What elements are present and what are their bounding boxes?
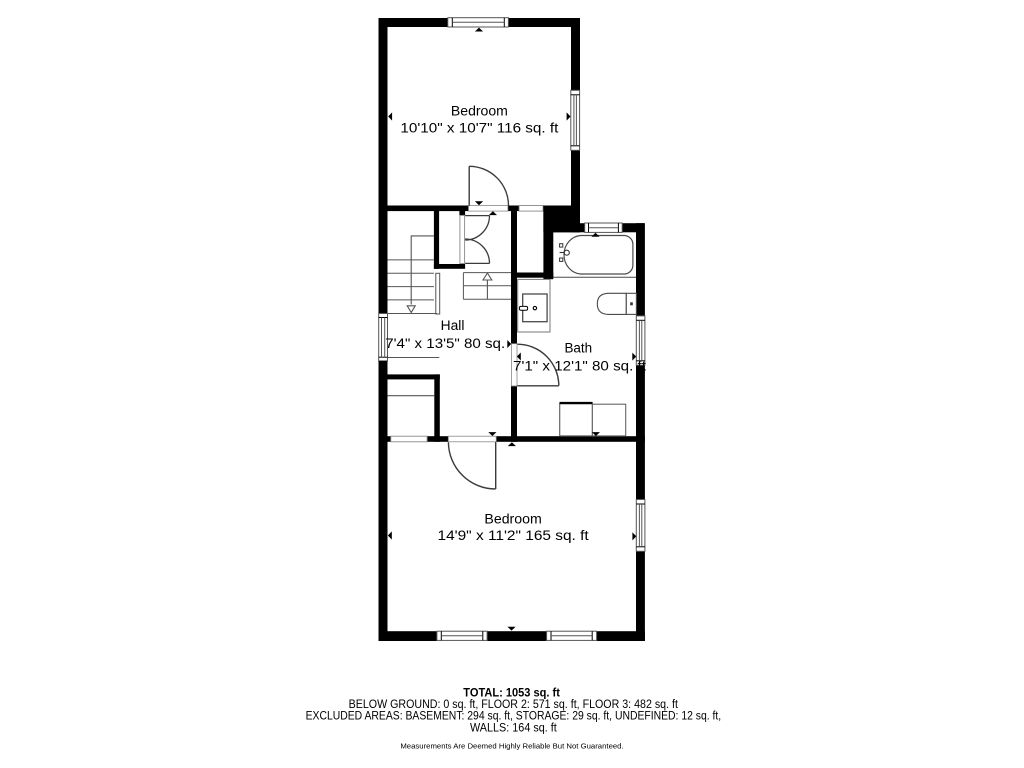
svg-text:Bath: Bath <box>564 341 592 357</box>
svg-text:Hall: Hall <box>441 318 465 334</box>
svg-text:WALLS: 164 sq. ft: WALLS: 164 sq. ft <box>470 720 557 734</box>
svg-text:Bedroom: Bedroom <box>484 511 541 527</box>
svg-text:7'4" x 13'5" 80 sq.: 7'4" x 13'5" 80 sq. <box>385 336 505 352</box>
svg-text:Bedroom: Bedroom <box>451 104 508 120</box>
svg-text:Measurements Are Deemed Highly: Measurements Are Deemed Highly Reliable … <box>400 742 623 751</box>
svg-text:7'1" x 12'1" 80 sq. ft: 7'1" x 12'1" 80 sq. ft <box>513 358 646 374</box>
svg-text:10'10" x 10'7" 116 sq. ft: 10'10" x 10'7" 116 sq. ft <box>400 120 558 136</box>
svg-text:14'9" x 11'2" 165 sq. ft: 14'9" x 11'2" 165 sq. ft <box>438 528 589 544</box>
